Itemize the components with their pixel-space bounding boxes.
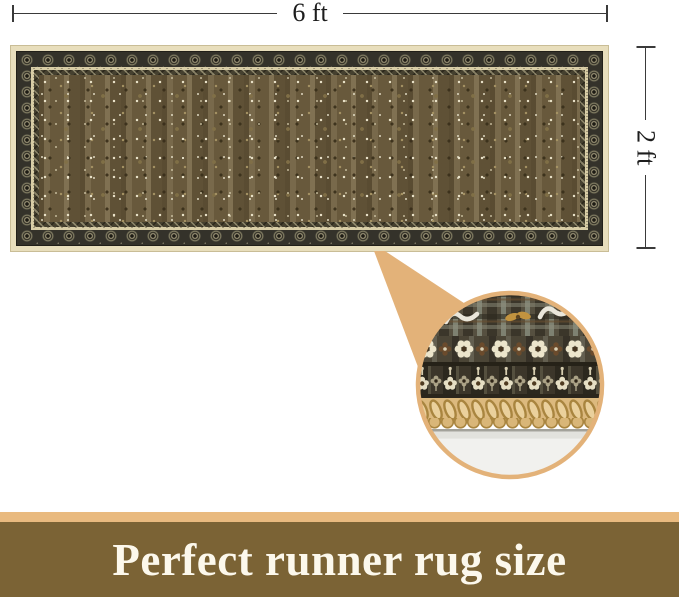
banner: Perfect runner rug size	[0, 512, 679, 597]
banner-accent-strip	[0, 512, 679, 522]
product-image: 6 ft 2 ft	[0, 0, 679, 597]
banner-body: Perfect runner rug size	[0, 522, 679, 597]
magnifier-callout	[0, 0, 679, 597]
banner-title: Perfect runner rug size	[112, 534, 566, 586]
